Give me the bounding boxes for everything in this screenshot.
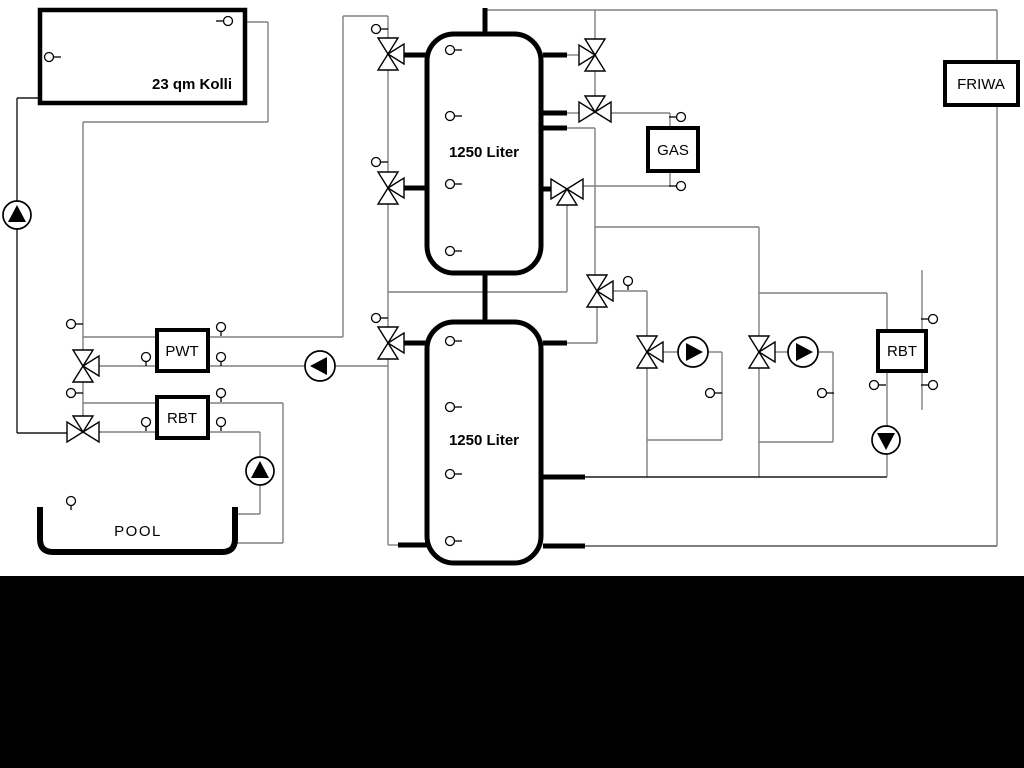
buffer-tank-1: 1250 Liter [427, 34, 541, 273]
solar-collector-box: 23 qm Kolli [40, 10, 245, 103]
pump-icon [246, 457, 274, 485]
rbt-left-heat-exchanger-box: RBT [157, 397, 208, 438]
pool-basin: POOL [40, 507, 235, 552]
pwt-heat-exchanger-box: PWT [157, 330, 208, 371]
pwt-label: PWT [165, 343, 198, 360]
buffer-tank-1-label: 1250 Liter [449, 144, 519, 161]
friwa-label: FRIWA [957, 76, 1005, 93]
rbt-right-label: RBT [887, 343, 917, 360]
gas-boiler-box: GAS [648, 128, 698, 171]
buffer-tank-2: 1250 Liter [427, 322, 541, 563]
pump-icon [788, 337, 818, 367]
rbt-left-label: RBT [167, 410, 197, 427]
pump-icon [305, 351, 335, 381]
bottom-black-bar [0, 576, 1024, 768]
pool-label: POOL [114, 523, 162, 540]
pump-icon [872, 426, 900, 454]
rbt-right-heat-exchanger-box: RBT [878, 331, 926, 371]
buffer-tank-2-label: 1250 Liter [449, 432, 519, 449]
gas-label: GAS [657, 142, 689, 159]
schematic-diagram: 23 qm Kolli 1250 Liter 1250 Liter PWT RB… [0, 0, 1024, 768]
pump-icon [3, 201, 31, 229]
solar-collector-label: 23 qm Kolli [152, 76, 232, 93]
friwa-fresh-water-box: FRIWA [945, 62, 1018, 105]
pump-icon [678, 337, 708, 367]
